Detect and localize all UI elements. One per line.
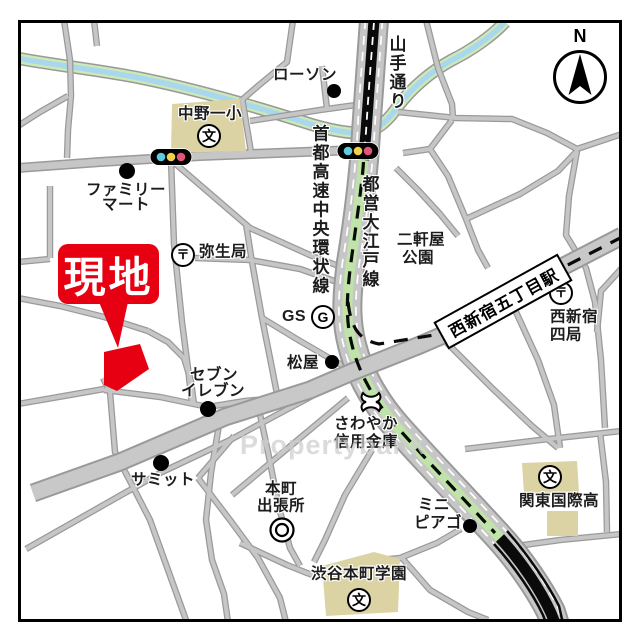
compass-n-label: N <box>574 26 587 46</box>
site-callout-tail <box>0 0 640 640</box>
map-canvas: ローソン山手通り中野一小ファミリーマート首都高速中央環状線都営大江戸線二軒屋公園… <box>0 0 640 640</box>
compass: N <box>547 24 613 115</box>
site-callout: 現地 <box>58 244 159 304</box>
site-callout-label: 現地 <box>63 244 153 305</box>
